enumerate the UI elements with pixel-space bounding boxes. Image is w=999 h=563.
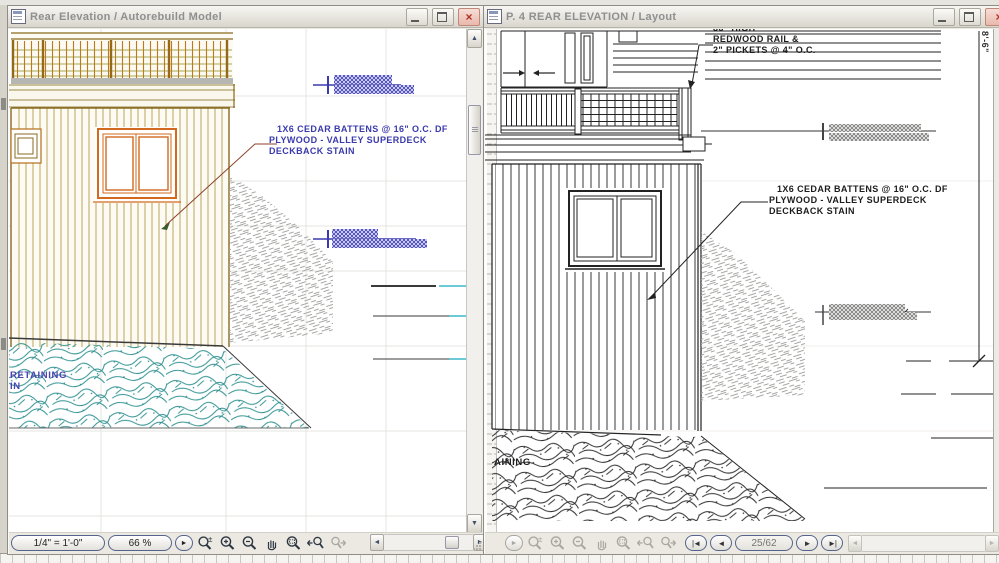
pan-hand-icon[interactable]	[262, 535, 281, 552]
svg-text:±: ±	[208, 535, 213, 544]
scrollbar-thumb[interactable]	[468, 105, 481, 155]
document-icon	[11, 9, 26, 24]
retaining-label: AINING	[494, 457, 531, 468]
zoom-out-icon[interactable]	[570, 535, 589, 552]
close-button[interactable]: ×	[985, 8, 999, 26]
view-toolbar: 1/4" = 1'-0" 66 % ► ± ◄ ►	[9, 532, 482, 553]
zoom-percent-field[interactable]: 66 %	[108, 535, 172, 551]
resize-grip[interactable]	[473, 542, 482, 551]
fit-in-window-icon[interactable]	[284, 535, 303, 552]
elevation-drawing-model	[9, 29, 466, 533]
scroll-right-button[interactable]: ►	[985, 535, 999, 552]
background-edge-mark	[1, 98, 6, 110]
zoom-in-icon[interactable]	[548, 535, 567, 552]
next-page-button[interactable]: ►	[796, 535, 818, 551]
previous-zoom-icon[interactable]	[306, 535, 325, 552]
previous-page-button[interactable]: ◄	[710, 535, 732, 551]
vent-window	[11, 129, 41, 163]
window-rear-elevation-model: Rear Elevation / Autorebuild Model ×	[7, 5, 484, 555]
next-zoom-icon[interactable]	[658, 535, 677, 552]
scrollbar-thumb[interactable]	[445, 536, 459, 549]
selected-dimension-marker[interactable]	[313, 75, 414, 94]
pan-hand-icon[interactable]	[592, 535, 611, 552]
battens-annotation: 1X6 CEDAR BATTENS @ 16" O.C. DF PLYWOOD …	[769, 184, 948, 217]
previous-zoom-icon[interactable]	[636, 535, 655, 552]
scrollbar-track[interactable]	[862, 535, 985, 552]
window-rear-elevation-layout: P. 4 REAR ELEVATION / Layout ×	[483, 5, 999, 555]
fascia-band	[485, 135, 712, 160]
minimize-button[interactable]	[406, 8, 428, 26]
elevation-drawing-layout	[485, 29, 999, 533]
dimension-marker	[815, 304, 931, 325]
window-title: Rear Elevation / Autorebuild Model	[30, 11, 402, 23]
dimension-marker	[701, 123, 936, 141]
vertical-scrollbar[interactable]	[993, 29, 999, 533]
last-page-button[interactable]: ►|	[821, 535, 843, 551]
zoom-menu-button[interactable]: ►	[175, 535, 193, 551]
window-title: P. 4 REAR ELEVATION / Layout	[506, 11, 929, 23]
window-opening	[565, 188, 665, 272]
drawing-area-layout[interactable]: 36" HIGH REDWOOD RAIL & 2" PICKETS @ 4" …	[485, 29, 999, 533]
app-canvas: { "left_window": { "title": "Rear Elevat…	[0, 0, 999, 562]
sliding-door-arrows	[503, 70, 555, 76]
retaining-wall	[492, 429, 805, 521]
horizontal-scrollbar[interactable]: ◄ ►	[848, 535, 999, 552]
scroll-left-button[interactable]: ◄	[370, 534, 384, 551]
zoom-in-icon[interactable]	[218, 535, 237, 552]
first-page-button[interactable]: |◄	[685, 535, 707, 551]
battens-annotation: 1X6 CEDAR BATTENS @ 16" O.C. DF PLYWOOD …	[269, 124, 448, 157]
picket-railing	[501, 88, 691, 140]
scrollbar-track[interactable]	[384, 534, 473, 551]
page-indicator-field[interactable]: 25/62	[735, 535, 793, 551]
next-zoom-icon[interactable]	[328, 535, 347, 552]
titlebar[interactable]: Rear Elevation / Autorebuild Model ×	[8, 6, 483, 28]
drawing-area-model[interactable]: 1X6 CEDAR BATTENS @ 16" O.C. DF PLYWOOD …	[9, 29, 466, 533]
layout-toolbar: ► ± |◄ ◄ 25/62 ► ►| ◄ ►	[485, 532, 999, 553]
zoom-percent-icon[interactable]: ±	[526, 535, 545, 552]
scroll-up-button[interactable]: ▲	[467, 29, 482, 48]
zoom-out-icon[interactable]	[240, 535, 259, 552]
titlebar[interactable]: P. 4 REAR ELEVATION / Layout ×	[484, 6, 999, 28]
background-edge-mark	[1, 338, 6, 350]
fascia-band	[9, 84, 235, 108]
hillside-hatch	[701, 231, 805, 401]
fit-in-window-icon[interactable]	[614, 535, 633, 552]
minimize-button[interactable]	[933, 8, 955, 26]
vertical-scrollbar[interactable]: ▲ ▼	[466, 29, 482, 533]
deck-railing	[11, 32, 233, 84]
hillside-hatch	[229, 175, 333, 343]
layout-document-icon	[487, 9, 502, 24]
level-lines	[824, 31, 999, 488]
scroll-down-button[interactable]: ▼	[467, 514, 482, 533]
scroll-left-button[interactable]: ◄	[848, 535, 862, 552]
svg-text:±: ±	[538, 535, 543, 544]
selected-dimension-marker[interactable]	[313, 229, 427, 248]
rail-annotation: 36" HIGH REDWOOD RAIL & 2" PICKETS @ 4" …	[713, 29, 816, 56]
scale-field[interactable]: 1/4" = 1'-0"	[11, 535, 105, 551]
maximize-button[interactable]	[432, 8, 454, 26]
close-button[interactable]: ×	[458, 8, 480, 26]
zoom-percent-icon[interactable]: ±	[196, 535, 215, 552]
window-opening	[93, 127, 181, 203]
maximize-button[interactable]	[959, 8, 981, 26]
level-lines	[371, 286, 466, 359]
horizontal-scrollbar[interactable]: ◄ ►	[370, 534, 487, 551]
vertical-dimension-text: 8'-6"	[980, 31, 990, 53]
zoom-menu-button[interactable]: ►	[505, 535, 523, 551]
retaining-label: RETAINING IN	[10, 370, 67, 392]
